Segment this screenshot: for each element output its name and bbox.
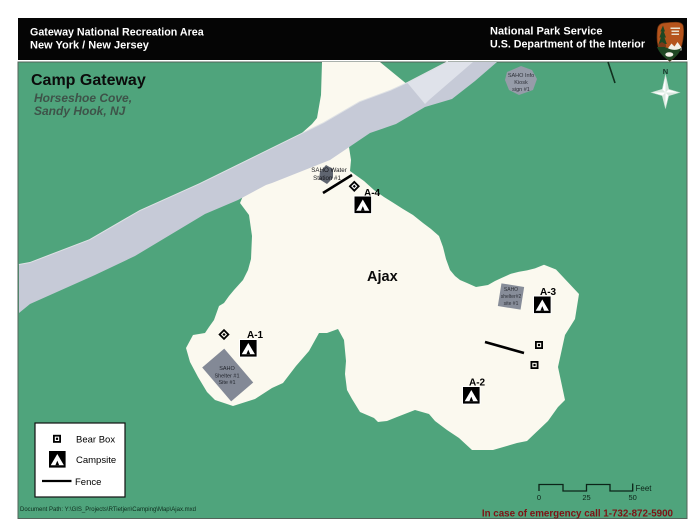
svg-text:Camp Gateway: Camp Gateway — [31, 72, 146, 89]
svg-text:Kiosk: Kiosk — [514, 80, 528, 86]
svg-text:In case of emergency call 1-73: In case of emergency call 1-732-872-5900 — [482, 509, 674, 520]
svg-text:sign #1: sign #1 — [512, 87, 530, 93]
svg-text:SAHO Info: SAHO Info — [508, 73, 534, 79]
svg-text:Document Path: Y:\GIS_Projects: Document Path: Y:\GIS_Projects\RTietjen\… — [20, 507, 196, 513]
svg-text:Sandy Hook, NJ: Sandy Hook, NJ — [34, 104, 126, 118]
svg-text:Station #1: Station #1 — [313, 175, 341, 182]
svg-text:50: 50 — [629, 493, 637, 502]
svg-text:0: 0 — [537, 493, 541, 502]
svg-text:Ajax: Ajax — [367, 269, 398, 285]
svg-text:site #1: site #1 — [504, 301, 519, 307]
svg-text:Feet: Feet — [636, 484, 653, 493]
svg-text:Gateway National Recreation Ar: Gateway National Recreation Area — [30, 27, 205, 39]
svg-text:U.S. Department of the Interio: U.S. Department of the Interior — [490, 39, 645, 51]
svg-text:Horseshoe Cove,: Horseshoe Cove, — [34, 91, 132, 105]
svg-text:SAHO: SAHO — [219, 366, 235, 372]
svg-text:shelter#2: shelter#2 — [501, 294, 522, 300]
svg-text:SAHO Water: SAHO Water — [311, 167, 347, 174]
svg-text:Site #1: Site #1 — [218, 380, 235, 386]
svg-text:Fence: Fence — [75, 477, 101, 488]
svg-text:Campsite: Campsite — [76, 455, 116, 466]
svg-text:New York / New Jersey: New York / New Jersey — [30, 40, 150, 52]
svg-text:SAHO: SAHO — [504, 287, 518, 293]
svg-text:25: 25 — [582, 493, 590, 502]
svg-text:National Park Service: National Park Service — [490, 26, 603, 38]
svg-text:Shelter #1: Shelter #1 — [214, 374, 239, 380]
svg-text:N: N — [663, 67, 668, 76]
svg-text:Bear Box: Bear Box — [76, 435, 115, 446]
